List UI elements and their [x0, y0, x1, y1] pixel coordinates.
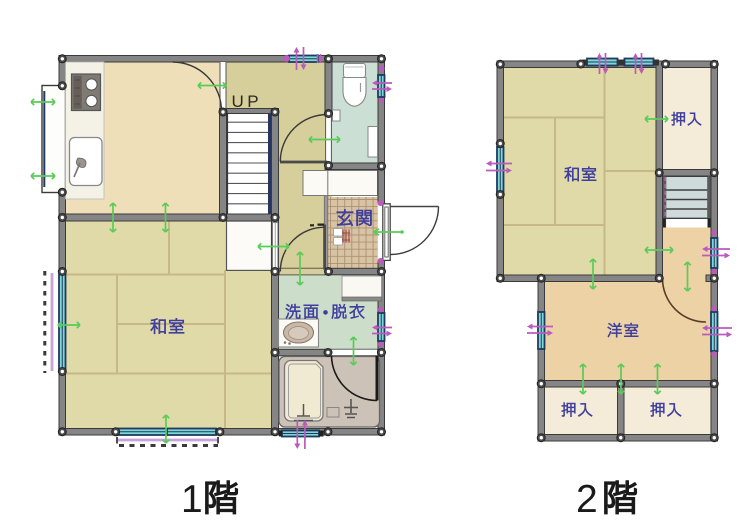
svg-text:1: 1 — [181, 478, 203, 521]
svg-text:2: 2 — [576, 478, 598, 521]
svg-text:UP: UP — [232, 92, 263, 111]
